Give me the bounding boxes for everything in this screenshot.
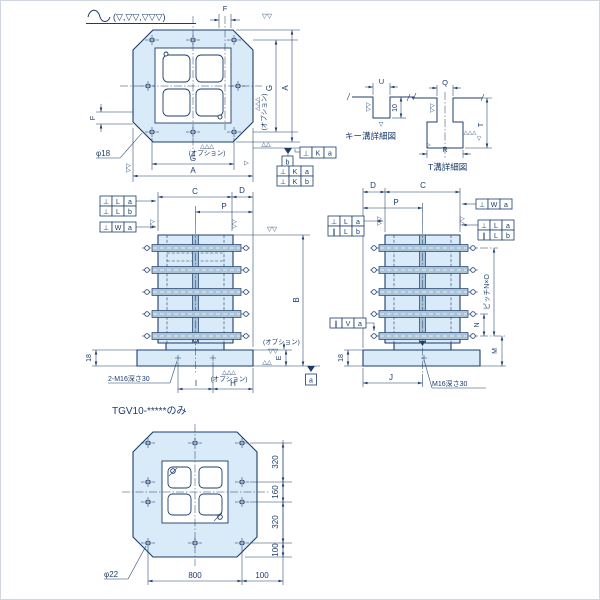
fcf-perp-L-ab: ⊥ L a ⊥ L b [100, 196, 156, 216]
front-base [137, 350, 253, 366]
finish-mark: ▽ [379, 122, 384, 128]
dim-160: 160 [271, 485, 280, 499]
svg-text:⊥: ⊥ [481, 223, 487, 230]
dim-100-bottom: 100 [255, 571, 269, 580]
svg-text:L: L [494, 233, 498, 240]
bottom-slot-sq-bl [168, 494, 191, 515]
svg-text:⊥: ⊥ [280, 179, 286, 186]
svg-text:b: b [506, 233, 510, 240]
dim-G-right: G [265, 85, 274, 91]
svg-text:a: a [504, 202, 508, 209]
svg-text:a: a [506, 223, 510, 230]
fcf-par-V-a: ∥ V a [330, 318, 374, 331]
svg-text:∥: ∥ [334, 320, 338, 328]
finish-mark: ▽▽ [268, 348, 278, 355]
finish-mark: ▽▽ [366, 102, 372, 112]
datum-triangle [307, 366, 315, 372]
drawing-sheet: (▽,▽▽,▽▽▽) F ▽▽ F △△△ (オプション) G A △△△ (オ… [0, 0, 600, 600]
finish-mark: ▽▽ [232, 219, 238, 229]
dim-P-side: P [393, 198, 398, 207]
dim-B: B [292, 297, 301, 302]
fcf-perp-W-a: ⊥ W a [100, 222, 156, 232]
top-slot-sq-br [196, 89, 223, 116]
top-slot-sq-tl [163, 55, 190, 82]
t-slot-detail: Q ▽▽ T △△△ ▽ ▽ R T溝詳細図 [407, 78, 492, 172]
dim-18-front: 18 [86, 354, 93, 362]
svg-text:⊥: ⊥ [303, 151, 309, 158]
tap-callout-side: M16深さ30 [432, 379, 468, 388]
svg-text:K: K [293, 169, 298, 176]
svg-text:⊥: ⊥ [331, 219, 337, 226]
dim-A-bottom: A [190, 166, 196, 175]
finish-mark: ▽▽ [430, 103, 436, 113]
dim-dia22: φ22 [104, 570, 119, 579]
dim-J: J [389, 373, 393, 382]
dim-Q: Q [442, 78, 448, 87]
dim-G-bottom: G [190, 154, 196, 163]
svg-text:K: K [316, 151, 321, 158]
top-view: F ▽▽ F △△△ (オプション) G A △△△ (オプション) G A φ… [88, 4, 336, 186]
svg-text:⊥: ⊥ [280, 169, 286, 176]
dim-U: U [379, 77, 384, 86]
svg-text:b: b [305, 179, 309, 186]
fcf-perp-K-ab: ⊥ K a ⊥ K b [277, 166, 313, 186]
pin-hole [171, 469, 176, 474]
pin-hole [164, 52, 168, 56]
svg-text:a: a [358, 321, 362, 328]
side-view: D C P ▽▽ ▽▽ ⊥ L a ∥ L b ⊥ L a ∥ L b ⊥ W … [328, 181, 514, 388]
svg-text:a: a [128, 225, 132, 232]
svg-text:L: L [494, 223, 498, 230]
bottom-view-title: TGV10-*****のみ [112, 406, 186, 417]
svg-text:a: a [305, 169, 309, 176]
finish-mark: △△△ [464, 130, 477, 136]
svg-text:L: L [344, 229, 348, 236]
dim-A-right: A [281, 85, 290, 91]
finish-mark: △△ [262, 360, 272, 366]
dim-N: N [474, 322, 481, 327]
svg-text:a: a [356, 219, 360, 226]
surface-finish-legend: (▽,▽▽,▽▽▽) [86, 10, 196, 23]
surface-wave-icon [88, 10, 110, 21]
finish-mark: ▽ [244, 160, 250, 165]
tap-callout-front: 2-M16深さ30 [108, 374, 150, 383]
dim-10: 10 [392, 104, 399, 112]
svg-text:∥: ∥ [482, 232, 486, 240]
bottom-view: 320 160 320 100 800 100 φ22 [104, 424, 292, 585]
dim-C-side: C [420, 181, 426, 190]
dim-dia18: φ18 [96, 149, 111, 158]
dim-D-side: D [370, 181, 376, 190]
svg-text:a: a [328, 151, 332, 158]
dim-C-front: C [192, 187, 198, 196]
svg-text:∥: ∥ [332, 228, 336, 236]
svg-text:W: W [491, 202, 498, 209]
top-slot-sq-tr [196, 55, 223, 82]
svg-text:⊥: ⊥ [479, 202, 485, 209]
finish-mark: ▽ [477, 136, 482, 142]
svg-text:W: W [115, 225, 122, 232]
finish-mark: △△ [261, 142, 271, 148]
key-detail-title: キー溝詳細図 [345, 131, 396, 141]
svg-text:a: a [128, 199, 132, 206]
front-neck [166, 343, 224, 350]
fcf-side-top-right: ⊥ W a [462, 199, 512, 209]
top-slot-sq-bl [163, 89, 190, 116]
dim-P-front: P [221, 202, 226, 211]
svg-text:K: K [293, 179, 298, 186]
dim-T: T [478, 122, 485, 127]
bottom-slot-sq-br [199, 494, 222, 515]
dim-100-right: 100 [271, 543, 280, 557]
dim-M: M [492, 348, 499, 354]
svg-text:V: V [346, 321, 351, 328]
svg-text:⊥: ⊥ [103, 209, 109, 216]
surface-legend-text: (▽,▽▽,▽▽▽) [113, 12, 166, 22]
pin-hole [218, 115, 222, 119]
option-note: (オプション) [211, 375, 248, 383]
svg-text:b: b [356, 229, 360, 236]
dim-I: I [195, 379, 197, 388]
svg-text:L: L [116, 209, 120, 216]
pin-hole [218, 515, 223, 520]
dim-320-bottom: 320 [271, 515, 280, 529]
option-note: (オプション) [263, 338, 300, 346]
finish-mark: ▽▽ [262, 13, 272, 20]
dim-D-front: D [239, 186, 245, 195]
dim-800: 800 [188, 571, 202, 580]
dim-F-left: F [88, 115, 97, 120]
dim-pitch: ピッチN×O [483, 274, 491, 310]
svg-text:b: b [128, 209, 132, 216]
finish-mark: ▽▽ [460, 216, 466, 226]
dim-F-top: F [223, 4, 228, 13]
datum-a-label: a [309, 378, 313, 385]
dim-R: R [442, 147, 447, 154]
svg-text:⊥: ⊥ [103, 199, 109, 206]
datum-b-label: b [286, 160, 290, 167]
finish-mark: ▽▽ [126, 163, 132, 173]
t-detail-title: T溝詳細図 [428, 162, 467, 172]
bottom-slot-sq-tr [199, 467, 222, 488]
option-note: (オプション) [260, 94, 268, 131]
finish-mark: ▽▽ [267, 226, 277, 233]
dim-320-top: 320 [271, 455, 280, 469]
fcf-side-left: ⊥ L a ∥ L b [328, 216, 383, 236]
fcf-side-right: ⊥ L a ∥ L b [462, 220, 514, 240]
technical-drawing: (▽,▽▽,▽▽▽) F ▽▽ F △△△ (オプション) G A △△△ (オ… [0, 0, 600, 600]
fcf-perp-K-a: ⊥ K a [295, 147, 336, 158]
front-view: C D P ▽▽ ▽▽ ▽▽ ⊥ L a ⊥ L b ⊥ W a B (オプショ… [86, 186, 320, 393]
svg-text:L: L [116, 199, 120, 206]
svg-text:⊥: ⊥ [103, 225, 109, 232]
dim-18-side: 18 [338, 354, 345, 362]
dim-E: E [276, 355, 283, 360]
svg-text:L: L [344, 219, 348, 226]
datum-triangle [284, 148, 292, 154]
key-slot-detail: U 10 ▽▽ ▽ キー溝詳細図 [345, 77, 416, 141]
